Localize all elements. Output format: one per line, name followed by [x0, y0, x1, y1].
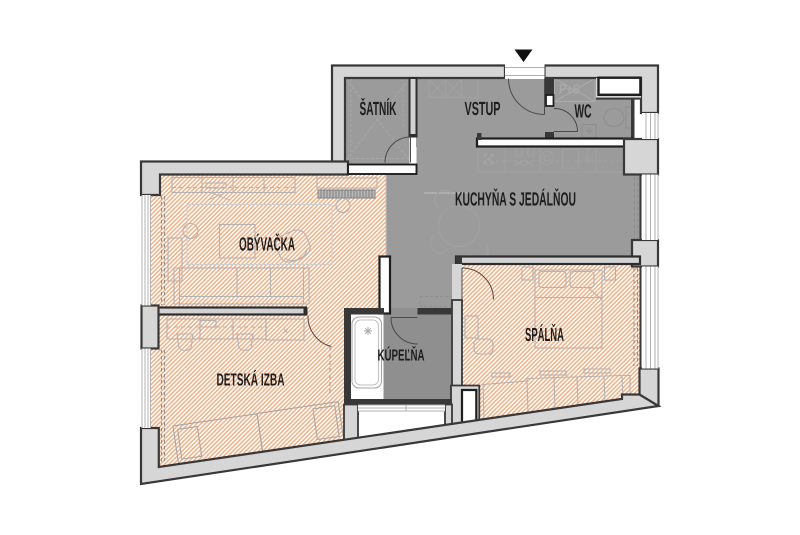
svg-text:DETSKÁ IZBA: DETSKÁ IZBA	[217, 370, 285, 390]
svg-text:KÚPEĽŇA: KÚPEĽŇA	[378, 345, 425, 364]
svg-text:VSTUP: VSTUP	[465, 99, 501, 120]
svg-text:KUCHYŇA S JEDÁLŇOU: KUCHYŇA S JEDÁLŇOU	[455, 188, 576, 211]
svg-text:SPÁLŇA: SPÁLŇA	[525, 323, 564, 346]
svg-text:WC: WC	[575, 102, 592, 123]
svg-text:OBÝVAČKA: OBÝVAČKA	[239, 233, 295, 256]
svg-text:P+S: P+S	[559, 82, 580, 97]
svg-text:ŠATNÍK: ŠATNÍK	[360, 97, 397, 120]
